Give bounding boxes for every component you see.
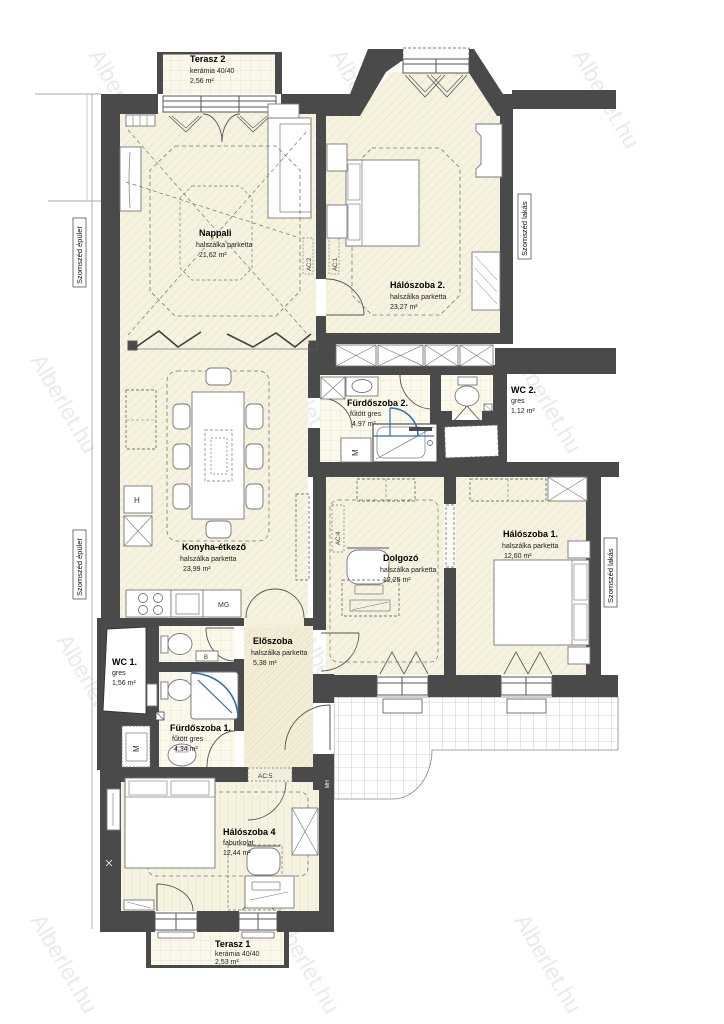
- svg-text:Terasz 1: Terasz 1: [215, 939, 250, 949]
- svg-text:Hálószoba 2.: Hálószoba 2.: [390, 280, 445, 290]
- svg-text:23,27 m²: 23,27 m²: [390, 304, 418, 311]
- svg-text:Előszoba: Előszoba: [253, 636, 294, 646]
- svg-text:kerámia 40/40: kerámia 40/40: [215, 951, 259, 958]
- svg-text:fűtött gres: fűtött gres: [350, 411, 382, 418]
- svg-text:gres: gres: [112, 670, 126, 677]
- svg-text:halszálka parketta: halszálka parketta: [390, 294, 447, 301]
- svg-text:kerámia 40/40: kerámia 40/40: [190, 68, 234, 75]
- svg-text:halszálka parketta: halszálka parketta: [180, 556, 237, 563]
- svg-text:2,56 m²: 2,56 m²: [190, 78, 214, 85]
- svg-text:Nappali: Nappali: [199, 228, 232, 238]
- svg-text:12,25 m²: 12,25 m²: [383, 577, 411, 584]
- svg-text:12,44 m²: 12,44 m²: [223, 850, 251, 857]
- svg-text:MG: MG: [218, 602, 229, 609]
- svg-text:MH: MH: [325, 780, 331, 788]
- svg-text:WC 2.: WC 2.: [511, 385, 536, 395]
- svg-text:5,38 m²: 5,38 m²: [253, 660, 277, 667]
- svg-text:Konyha-étkező: Konyha-étkező: [182, 542, 247, 552]
- svg-text:AC:1: AC:1: [333, 257, 339, 271]
- svg-text:M: M: [132, 745, 141, 752]
- svg-text:4,34 m²: 4,34 m²: [174, 746, 198, 753]
- svg-text:Szomszéd épület: Szomszéd épület: [75, 538, 84, 596]
- svg-text:Szomszéd lakás: Szomszéd lakás: [520, 201, 529, 256]
- svg-text:Hálószoba 4: Hálószoba 4: [223, 827, 276, 837]
- svg-text:Fürdőszoba 1.: Fürdőszoba 1.: [170, 723, 231, 733]
- svg-text:halszálka parketta: halszálka parketta: [196, 242, 253, 249]
- svg-text:Terasz 2: Terasz 2: [190, 54, 225, 64]
- svg-text:fűtött gres: fűtött gres: [172, 736, 204, 743]
- svg-text:Dolgozó: Dolgozó: [383, 553, 419, 563]
- svg-text:Szomszéd épület: Szomszéd épület: [75, 226, 84, 284]
- svg-text:gres: gres: [511, 398, 525, 405]
- svg-text:Szomszéd lakás: Szomszéd lakás: [606, 548, 615, 603]
- svg-text:21,62 m²: 21,62 m²: [199, 252, 227, 259]
- svg-text:1,12 m²: 1,12 m²: [511, 408, 535, 415]
- svg-text:halszálka parketta: halszálka parketta: [380, 567, 437, 574]
- svg-text:M: M: [351, 449, 360, 456]
- svg-text:B: B: [204, 655, 208, 661]
- svg-text:halszálka parketta: halszálka parketta: [251, 650, 308, 657]
- svg-text:AC:4: AC:4: [336, 531, 342, 545]
- svg-text:Hálószoba 1.: Hálószoba 1.: [503, 529, 558, 539]
- svg-text:AC:2: AC:2: [307, 257, 313, 271]
- svg-text:4,97 m²: 4,97 m²: [352, 421, 376, 428]
- svg-text:WC 1.: WC 1.: [112, 657, 137, 667]
- svg-text:faburkolat: faburkolat: [223, 840, 254, 847]
- svg-text:AC:5: AC:5: [258, 773, 273, 780]
- svg-text:23,99 m²: 23,99 m²: [183, 566, 211, 573]
- svg-text:halszálka parketta: halszálka parketta: [502, 543, 559, 550]
- svg-text:Fürdőszoba 2.: Fürdőszoba 2.: [347, 398, 408, 408]
- svg-text:1,56 m²: 1,56 m²: [112, 680, 136, 687]
- svg-text:H: H: [134, 496, 140, 505]
- svg-text:2,53 m²: 2,53 m²: [215, 959, 239, 966]
- svg-text:12,60 m²: 12,60 m²: [504, 553, 532, 560]
